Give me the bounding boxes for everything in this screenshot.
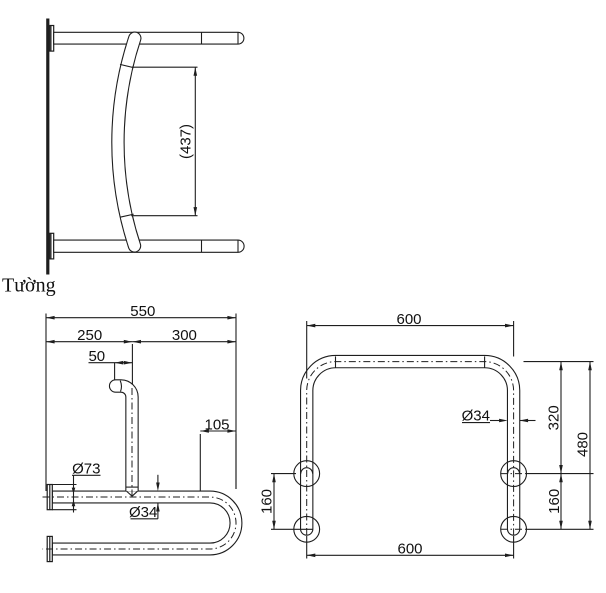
svg-text:Ø34: Ø34 (462, 408, 490, 425)
svg-text:160: 160 (546, 489, 563, 514)
svg-text:160: 160 (259, 489, 276, 514)
svg-text:Ø73: Ø73 (72, 460, 100, 477)
svg-text:600: 600 (397, 541, 422, 558)
svg-text:(437): (437) (178, 124, 195, 159)
svg-text:480: 480 (575, 432, 592, 457)
svg-text:550: 550 (130, 303, 155, 320)
svg-text:300: 300 (172, 327, 197, 344)
svg-text:105: 105 (204, 416, 229, 433)
svg-text:250: 250 (77, 327, 102, 344)
svg-text:320: 320 (546, 405, 563, 430)
svg-text:Tường: Tường (2, 275, 56, 297)
svg-text:50: 50 (88, 348, 105, 365)
svg-text:Ø34: Ø34 (129, 504, 157, 521)
svg-text:600: 600 (396, 311, 421, 328)
